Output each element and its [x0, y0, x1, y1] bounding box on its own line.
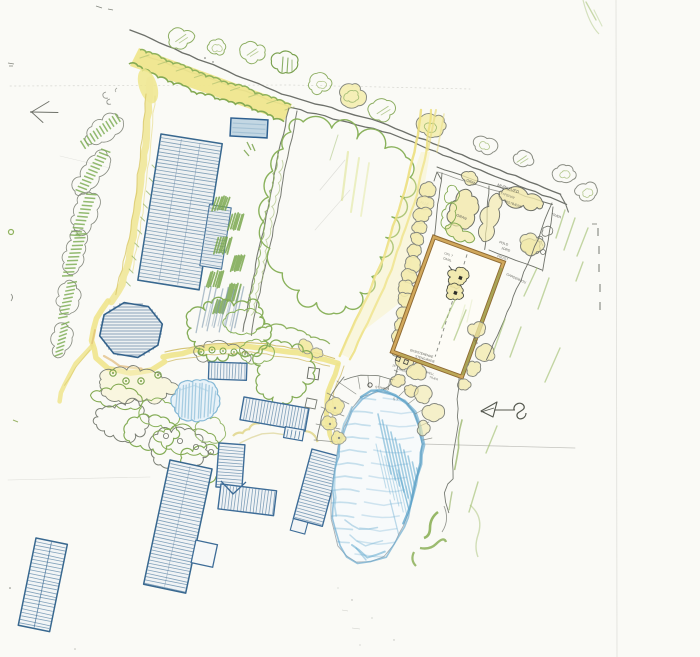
svg-text:5 ?: 5 ? — [393, 397, 399, 402]
